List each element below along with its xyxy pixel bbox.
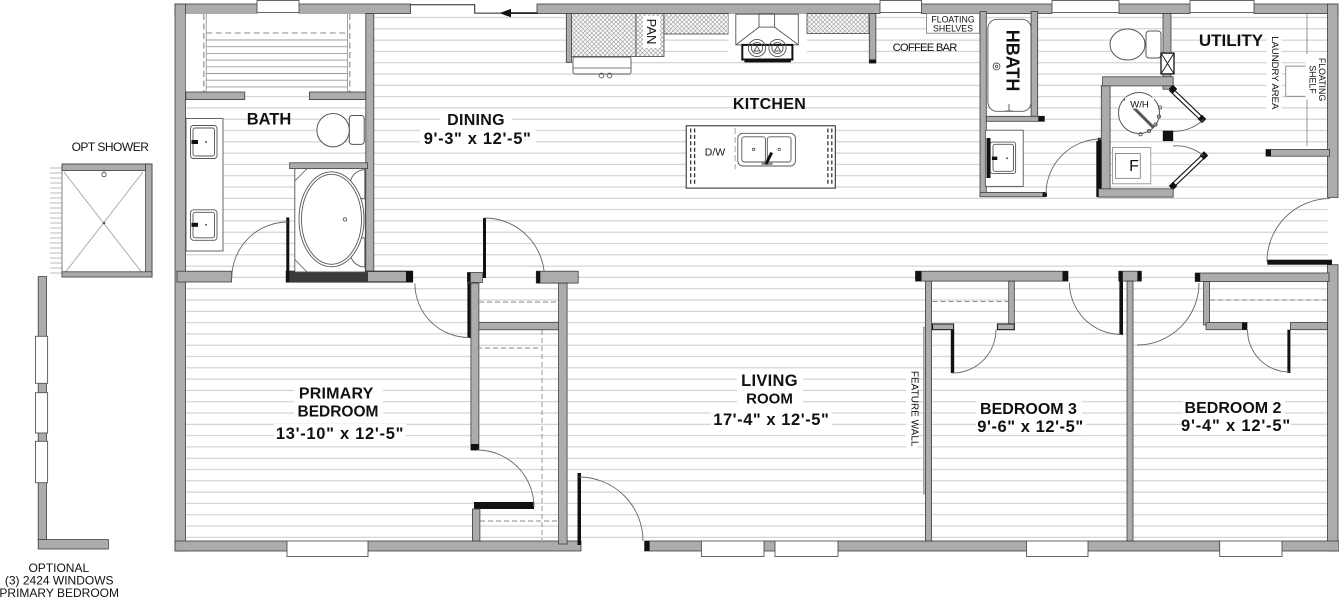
svg-text:9'-6" x 12'-5": 9'-6" x 12'-5"	[977, 418, 1083, 436]
svg-text:BATH: BATH	[247, 111, 292, 129]
svg-text:9'-3" x 12'-5": 9'-3" x 12'-5"	[424, 130, 532, 148]
svg-text:OPT SHOWER: OPT SHOWER	[72, 140, 150, 154]
svg-text:LIVING: LIVING	[741, 372, 798, 390]
svg-text:BEDROOM: BEDROOM	[298, 404, 379, 421]
svg-text:HBATH: HBATH	[1003, 30, 1023, 92]
svg-text:BEDROOM 2: BEDROOM 2	[1185, 400, 1282, 417]
svg-text:KITCHEN: KITCHEN	[733, 96, 806, 113]
svg-text:F: F	[1129, 158, 1139, 175]
svg-text:17'-4" x 12'-5": 17'-4" x 12'-5"	[713, 411, 829, 429]
svg-text:UTILITY: UTILITY	[1199, 31, 1264, 50]
svg-text:DINING: DINING	[447, 112, 505, 129]
svg-text:SHELVES: SHELVES	[933, 24, 973, 34]
svg-text:W/H: W/H	[1130, 100, 1149, 111]
svg-text:D/W: D/W	[705, 147, 726, 159]
svg-text:FEATURE WALL: FEATURE WALL	[909, 371, 920, 447]
svg-text:SHELF: SHELF	[1308, 65, 1318, 94]
svg-text:PRIMARY: PRIMARY	[299, 386, 374, 403]
svg-text:ROOM: ROOM	[746, 391, 793, 408]
svg-text:PAN: PAN	[644, 19, 659, 45]
svg-text:13'-10" x 12'-5": 13'-10" x 12'-5"	[276, 425, 404, 443]
svg-text:BEDROOM 3: BEDROOM 3	[980, 401, 1077, 418]
svg-text:9'-4" x 12'-5": 9'-4" x 12'-5"	[1181, 417, 1291, 435]
svg-text:PRIMARY BEDROOM: PRIMARY BEDROOM	[0, 586, 119, 600]
svg-text:LAUNDRY AREA: LAUNDRY AREA	[1269, 36, 1280, 110]
svg-text:COFFEE BAR: COFFEE BAR	[893, 42, 958, 54]
